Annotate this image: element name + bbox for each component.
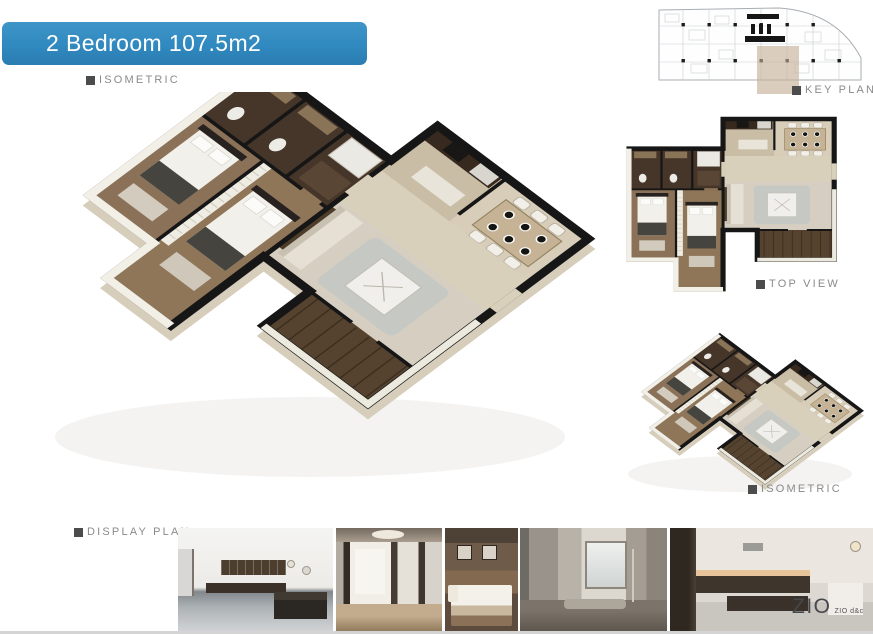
decor-window — [355, 549, 385, 594]
photo-living-room — [336, 528, 442, 634]
decor-dining-table — [274, 592, 327, 620]
square-bullet-icon — [756, 280, 765, 289]
zio-brand-text: ZIO — [792, 595, 832, 619]
square-bullet-icon — [792, 86, 801, 95]
square-bullet-icon — [86, 76, 95, 85]
display-plan-label-text: DISPLAY PLAN — [87, 526, 191, 538]
top-view-label-text: TOP VIEW — [769, 278, 840, 290]
decor-sofa — [336, 604, 442, 634]
main-isometric-floorplan — [15, 92, 600, 522]
key-plan-label-text: KEY PLAN — [805, 84, 873, 96]
decor-pendant-light — [287, 560, 295, 568]
decor-lamp — [850, 541, 861, 552]
decor-wall-frame — [457, 545, 472, 560]
photo-bedroom — [445, 528, 518, 634]
isometric-main-label-text: ISOMETRIC — [99, 74, 180, 86]
display-plan-label: DISPLAY PLAN — [74, 526, 191, 538]
page-title: 2 Bedroom 107.5m2 — [46, 30, 261, 57]
decor-tub-rim — [564, 599, 626, 609]
top-view-label: TOP VIEW — [756, 278, 840, 290]
decor-wall-unit — [178, 549, 194, 596]
floor-plan-slide: 2 Bedroom 107.5m2 ISOMETRIC — [0, 0, 873, 634]
key-plan-label: KEY PLAN — [792, 84, 873, 96]
small-isometric-floorplan — [612, 306, 867, 508]
zio-suffix-text: ZIO d&c — [835, 608, 864, 615]
isometric-small-label-text: ISOMETRIC — [761, 483, 842, 495]
decor-wall-frame — [482, 545, 497, 560]
isometric-small-label: ISOMETRIC — [748, 483, 842, 495]
decor-armchair — [448, 585, 458, 602]
decor-ceiling-light — [372, 530, 404, 538]
photo-bathroom — [520, 528, 667, 634]
zio-logo: ZIO ZIO d&c — [792, 595, 864, 619]
decor-window — [585, 541, 627, 590]
isometric-main-label: ISOMETRIC — [86, 74, 180, 86]
square-bullet-icon — [748, 485, 757, 494]
square-bullet-icon — [74, 528, 83, 537]
title-banner: 2 Bedroom 107.5m2 — [2, 22, 367, 65]
decor-shower-pole — [632, 549, 634, 602]
decor-pendant-light — [302, 566, 311, 575]
photo-kitchen-dining — [178, 528, 333, 634]
decor-base-cabinets — [696, 576, 810, 593]
decor-range-hood — [743, 543, 763, 551]
decor-tall-cabinets — [670, 528, 696, 634]
decor-cabinets — [221, 560, 286, 575]
top-view-floorplan — [622, 114, 838, 294]
decor-bed — [451, 585, 512, 625]
